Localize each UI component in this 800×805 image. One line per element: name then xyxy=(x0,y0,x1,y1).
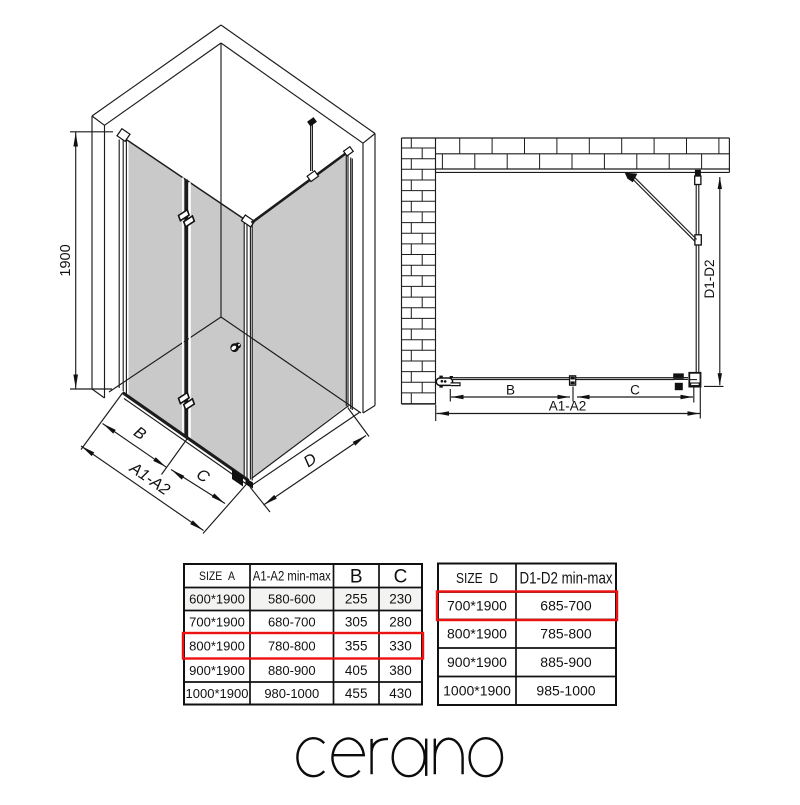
svg-text:SIZE A: SIZE A xyxy=(199,569,235,583)
svg-text:685-700: 685-700 xyxy=(540,598,592,614)
svg-text:B: B xyxy=(506,383,515,398)
svg-text:1000*1900: 1000*1900 xyxy=(186,686,249,701)
svg-text:680-700: 680-700 xyxy=(268,614,316,629)
svg-text:B: B xyxy=(350,566,363,587)
svg-text:900*1900: 900*1900 xyxy=(189,663,245,678)
svg-text:A1-A2: A1-A2 xyxy=(549,399,587,414)
svg-text:305: 305 xyxy=(345,615,368,630)
svg-text:355: 355 xyxy=(345,639,368,654)
svg-text:380: 380 xyxy=(389,663,412,678)
svg-text:885-900: 885-900 xyxy=(540,654,592,670)
svg-text:700*1900: 700*1900 xyxy=(189,614,245,629)
svg-text:D1-D2: D1-D2 xyxy=(702,259,717,298)
svg-text:700*1900: 700*1900 xyxy=(447,598,507,614)
svg-text:430: 430 xyxy=(389,686,412,701)
svg-text:785-800: 785-800 xyxy=(540,626,592,642)
svg-text:780-800: 780-800 xyxy=(268,638,316,653)
svg-text:1900: 1900 xyxy=(58,244,74,276)
svg-text:455: 455 xyxy=(345,686,368,701)
svg-text:230: 230 xyxy=(389,592,412,607)
svg-text:800*1900: 800*1900 xyxy=(447,626,507,642)
svg-text:900*1900: 900*1900 xyxy=(447,654,507,670)
svg-text:SIZE D: SIZE D xyxy=(456,571,498,587)
svg-text:600*1900: 600*1900 xyxy=(189,592,245,607)
svg-text:A1-A2 min-max: A1-A2 min-max xyxy=(253,569,331,584)
svg-text:980-1000: 980-1000 xyxy=(264,686,319,701)
svg-text:880-900: 880-900 xyxy=(268,663,316,678)
svg-text:1000*1900: 1000*1900 xyxy=(443,683,511,699)
svg-text:985-1000: 985-1000 xyxy=(536,683,595,699)
svg-text:280: 280 xyxy=(389,615,412,630)
svg-text:405: 405 xyxy=(345,663,368,678)
svg-text:C: C xyxy=(394,566,408,587)
svg-text:330: 330 xyxy=(389,639,412,654)
svg-text:580-600: 580-600 xyxy=(268,592,316,607)
svg-text:C: C xyxy=(630,383,640,398)
svg-text:D1-D2 min-max: D1-D2 min-max xyxy=(520,569,613,588)
svg-text:255: 255 xyxy=(345,592,368,607)
svg-text:800*1900: 800*1900 xyxy=(189,638,245,653)
